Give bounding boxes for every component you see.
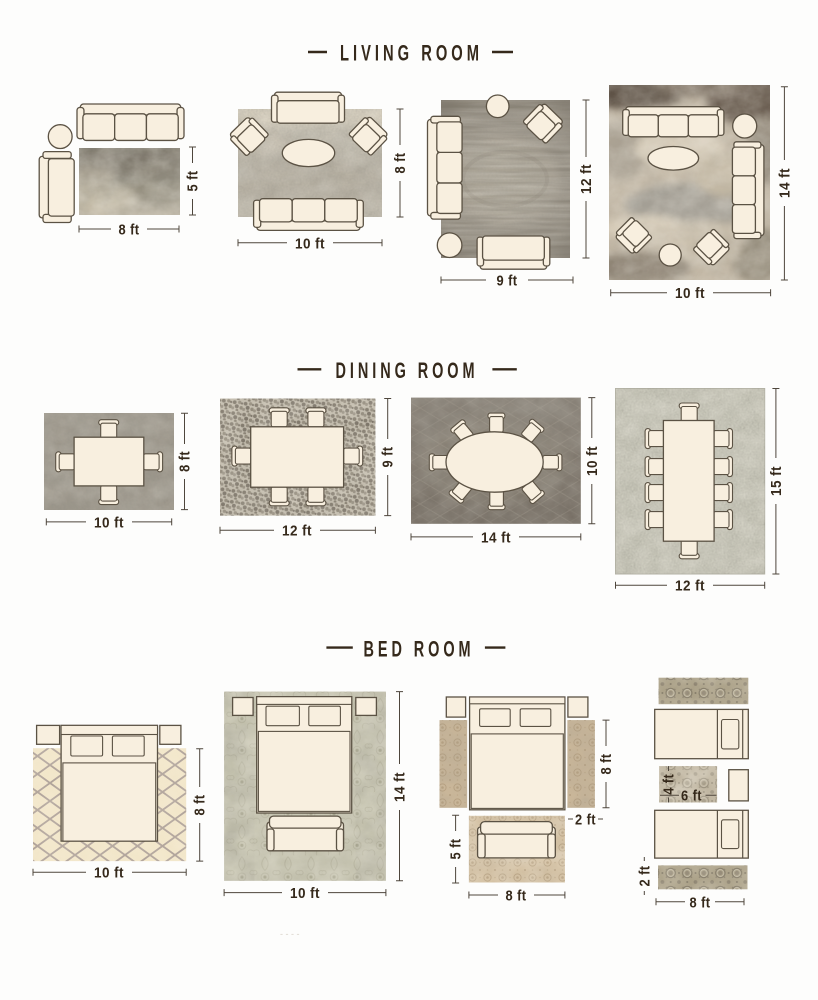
svg-text:8 ft: 8 ft bbox=[177, 451, 194, 472]
svg-text:- - - -: - - - - bbox=[280, 929, 300, 939]
svg-text:8 ft: 8 ft bbox=[192, 795, 209, 816]
svg-text:10 ft: 10 ft bbox=[675, 285, 705, 302]
svg-text:10 ft: 10 ft bbox=[584, 446, 601, 476]
svg-text:9 ft: 9 ft bbox=[380, 447, 397, 468]
svg-text:5 ft: 5 ft bbox=[185, 171, 202, 192]
svg-text:6 ft: 6 ft bbox=[681, 788, 702, 805]
svg-text:9 ft: 9 ft bbox=[497, 273, 518, 290]
svg-text:10 ft: 10 ft bbox=[295, 235, 325, 252]
svg-text:8 ft: 8 ft bbox=[119, 222, 140, 239]
svg-text:8 ft: 8 ft bbox=[506, 888, 527, 905]
svg-text:14 ft: 14 ft bbox=[481, 529, 511, 546]
svg-text:12 ft: 12 ft bbox=[578, 164, 595, 194]
svg-text:LIVING ROOM: LIVING ROOM bbox=[340, 41, 483, 66]
svg-text:15 ft: 15 ft bbox=[768, 466, 785, 496]
svg-text:5 ft: 5 ft bbox=[448, 839, 465, 860]
svg-text:10 ft: 10 ft bbox=[94, 865, 124, 882]
svg-text:12 ft: 12 ft bbox=[675, 578, 705, 595]
svg-text:2 ft: 2 ft bbox=[636, 866, 653, 887]
svg-text:2 ft: 2 ft bbox=[575, 811, 596, 828]
svg-text:8 ft: 8 ft bbox=[598, 754, 615, 775]
svg-text:14 ft: 14 ft bbox=[776, 168, 793, 198]
svg-text:10 ft: 10 ft bbox=[290, 885, 320, 902]
svg-text:14 ft: 14 ft bbox=[392, 772, 409, 802]
svg-text:12 ft: 12 ft bbox=[282, 523, 312, 540]
svg-text:10 ft: 10 ft bbox=[94, 514, 124, 531]
svg-text:8 ft: 8 ft bbox=[690, 894, 711, 911]
svg-text:BED ROOM: BED ROOM bbox=[364, 637, 475, 662]
svg-text:4 ft: 4 ft bbox=[661, 774, 678, 795]
svg-text:8 ft: 8 ft bbox=[392, 153, 409, 174]
svg-text:DINING ROOM: DINING ROOM bbox=[336, 358, 479, 383]
